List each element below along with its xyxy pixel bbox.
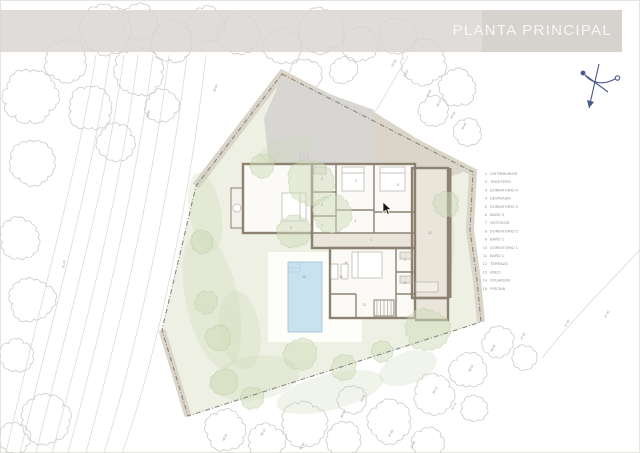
- thick-wall: [448, 168, 452, 298]
- legend-item-label: BAÑO 3: [490, 212, 504, 217]
- stairs: [374, 300, 394, 316]
- tree-icon: [0, 217, 40, 260]
- elevation-label: 50.60: [212, 84, 219, 93]
- room-number: 8: [397, 183, 399, 187]
- contour-line: [542, 250, 640, 358]
- green-tree-icon: [277, 215, 311, 248]
- elevation-label: 48.20: [221, 433, 228, 442]
- tree-icon: [326, 421, 361, 453]
- legend-item-number: 2: [485, 180, 487, 184]
- legend-item-number: 8: [485, 229, 487, 233]
- tree-icon: [411, 427, 444, 453]
- tree-icon: [9, 278, 57, 322]
- room-number: 2: [321, 177, 323, 181]
- elevation-label: 50.30: [390, 59, 397, 68]
- legend-item-label: DISTRIBUIDOR: [490, 172, 517, 176]
- elevation-label: 47.60: [563, 319, 570, 328]
- room-number: 15: [302, 275, 306, 279]
- room-number: 5: [290, 226, 292, 230]
- bed: [352, 252, 382, 278]
- contour-line: [36, 55, 124, 453]
- legend-item-label: TERRAZA: [490, 262, 508, 266]
- bed: [380, 167, 405, 191]
- legend-item-number: 14: [483, 279, 487, 283]
- elevation-label: 48.00: [489, 344, 496, 353]
- elevation-label: 47.40: [603, 310, 610, 319]
- elevation-label: 49.40: [460, 122, 467, 131]
- site-plan: 123456789101112131415 50.8051.2050.6050.…: [0, 0, 640, 453]
- tree-icon: [0, 422, 31, 453]
- tree-icon: [69, 86, 112, 129]
- legend-item-label: SOLARIUM: [490, 279, 510, 283]
- tree-icon: [205, 409, 246, 452]
- room-number: 13: [362, 303, 366, 307]
- legend-item-number: 6: [485, 213, 487, 217]
- legend-item-number: 10: [483, 246, 487, 250]
- contour-line: [86, 55, 169, 453]
- elevation-label: 49.50: [449, 111, 456, 120]
- room-number: 4: [354, 219, 356, 223]
- legend-item-label: BAÑO 2: [490, 237, 504, 242]
- elevation-label: 50.80: [145, 110, 151, 119]
- room-number: 10: [344, 261, 348, 265]
- legend-item-number: 3: [485, 188, 487, 192]
- legend-item-number: 11: [483, 254, 487, 258]
- tree-icon: [9, 140, 55, 186]
- bed: [342, 167, 364, 191]
- room-number: 12: [428, 231, 432, 235]
- tree-icon: [2, 70, 60, 124]
- room-number: 1: [370, 238, 372, 242]
- swimming-pool: [288, 262, 322, 332]
- legend-item-number: 5: [485, 205, 487, 209]
- page-title: PLANTA PRINCIPAL: [453, 10, 612, 52]
- legend-item-label: DORMITORIO 4: [490, 188, 518, 192]
- elevation-label: 47.60: [409, 440, 416, 449]
- green-tree-icon: [331, 354, 356, 380]
- green-tree-icon: [190, 230, 212, 254]
- room-number: 11: [403, 281, 407, 285]
- legend-item-label: DESPENSA: [490, 197, 511, 201]
- title-banner: PLANTA PRINCIPAL: [0, 10, 622, 52]
- legend-item-label: TRASTERO: [490, 180, 511, 184]
- elevation-label: 51.20: [61, 260, 67, 268]
- tree-icon: [418, 95, 449, 126]
- elevation-label: 48.30: [467, 364, 474, 373]
- legend-item-number: 9: [485, 238, 487, 242]
- room-number: 9: [404, 258, 406, 262]
- sun-lounger: [331, 264, 338, 279]
- legend-item-number: 7: [485, 221, 487, 225]
- round-table: [233, 204, 241, 212]
- legend-item-label: DORMITORIO 3: [490, 205, 518, 209]
- room-legend: 1DISTRIBUIDOR2TRASTERO3DORMITORIO 44DESP…: [483, 172, 518, 291]
- corridor-floor: [312, 233, 415, 248]
- tree-icon: [248, 423, 286, 453]
- elevation-label: 47.80: [387, 429, 394, 438]
- room-number: 3: [355, 179, 357, 183]
- elevation-label: 50.10: [402, 69, 409, 78]
- tree-icon: [438, 68, 475, 106]
- tree-icon: [453, 118, 481, 147]
- legend-item-label: PISCINA: [490, 287, 506, 291]
- room-number: 14: [339, 275, 343, 279]
- elevation-label: 48.10: [431, 386, 438, 395]
- north-arrow-icon: [581, 64, 620, 108]
- elevation-label: 49.70: [435, 99, 442, 108]
- room-number: 7: [321, 224, 323, 228]
- tree-icon: [512, 345, 537, 371]
- legend-item-number: 4: [485, 197, 487, 201]
- elevation-label: 48.10: [259, 428, 266, 437]
- legend-item-label: ASEO: [490, 270, 501, 274]
- tree-icon: [96, 123, 135, 162]
- tree-icon: [482, 326, 514, 358]
- contour-line: [52, 55, 138, 453]
- legend-item-number: 15: [483, 287, 487, 291]
- floor-plan-sheet: 123456789101112131415 50.8051.2050.6050.…: [0, 0, 640, 453]
- elevation-label: 47.90: [519, 332, 526, 341]
- terrace-sofa: [416, 282, 438, 292]
- legend-item-number: 1: [485, 172, 487, 176]
- legend-item-label: DORMITORIO 1: [490, 246, 518, 250]
- legend-item-label: VESTIDOR: [490, 221, 510, 225]
- tree-icon: [367, 399, 411, 445]
- elevation-label: 48.40: [339, 410, 346, 419]
- legend-item-number: 13: [483, 270, 487, 274]
- legend-item-label: DORMITORIO 2: [490, 229, 518, 233]
- legend-item-number: 12: [483, 262, 487, 266]
- room-number: 6: [321, 203, 323, 207]
- legend-item-label: BAÑO 1: [490, 253, 504, 258]
- tree-icon: [461, 395, 488, 422]
